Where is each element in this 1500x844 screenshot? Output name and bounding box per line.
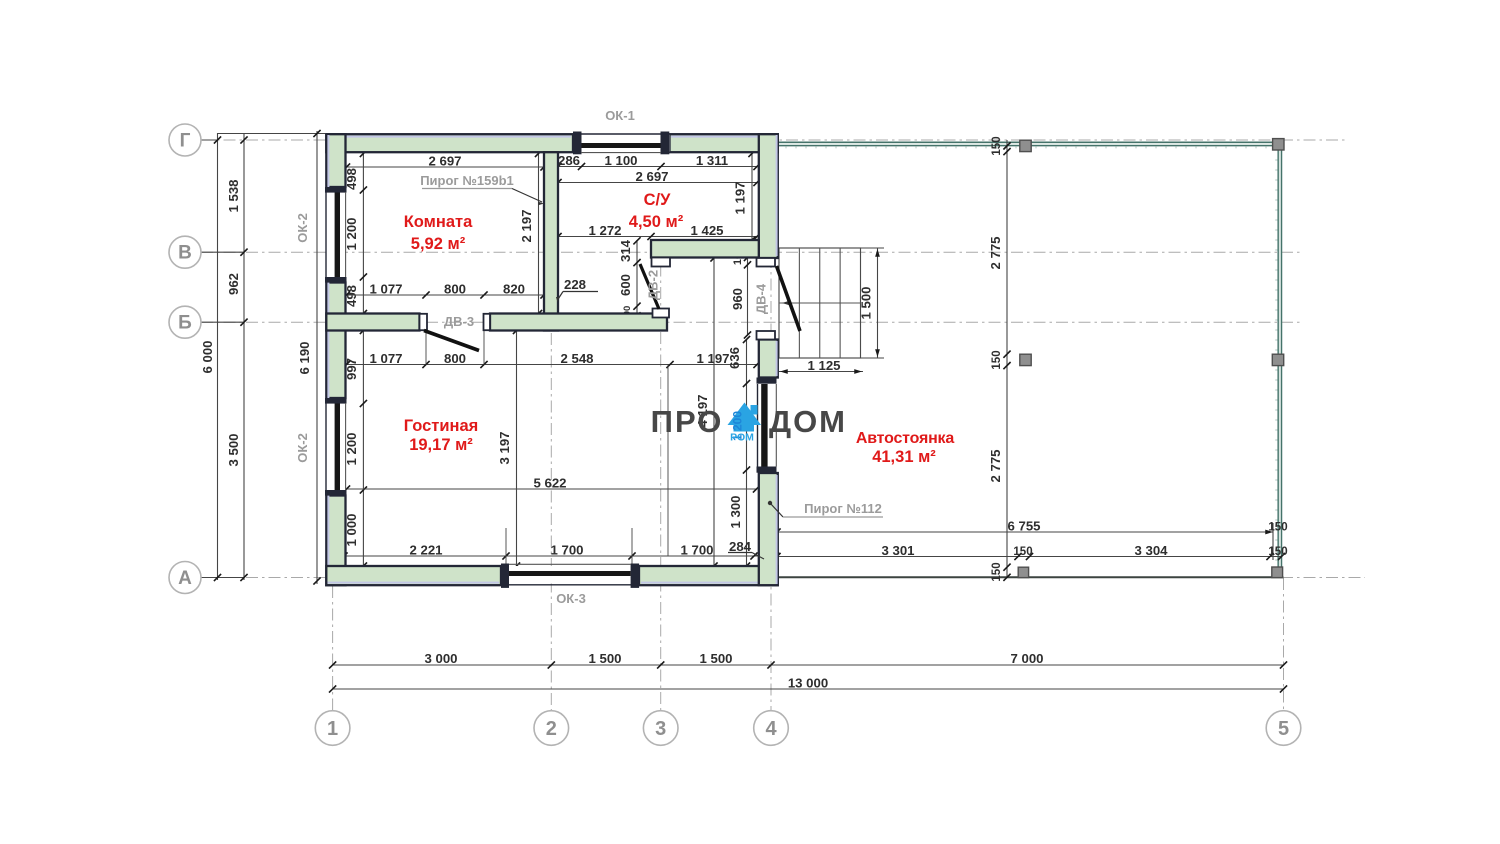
svg-text:150: 150 [991, 562, 1003, 581]
svg-text:2 775: 2 775 [988, 449, 1003, 482]
svg-text:228: 228 [564, 277, 586, 292]
svg-text:1: 1 [327, 718, 338, 740]
svg-text:3 197: 3 197 [497, 431, 512, 464]
svg-text:1 125: 1 125 [807, 358, 840, 373]
svg-text:636: 636 [727, 347, 742, 369]
svg-text:1 200: 1 200 [344, 432, 359, 465]
svg-text:5 622: 5 622 [533, 476, 566, 491]
svg-text:ОК-3: ОК-3 [556, 591, 586, 606]
svg-text:Пирог №159b1: Пирог №159b1 [420, 173, 514, 188]
svg-text:286: 286 [558, 153, 580, 168]
svg-text:600: 600 [618, 274, 633, 296]
svg-text:ДОМ: ДОМ [769, 404, 847, 439]
svg-text:4,50 м²: 4,50 м² [629, 213, 684, 231]
svg-text:800: 800 [444, 281, 466, 296]
svg-text:1 197: 1 197 [696, 351, 729, 366]
svg-text:1 077: 1 077 [369, 281, 402, 296]
svg-text:19,17 м²: 19,17 м² [409, 436, 473, 454]
svg-text:ДВ-3: ДВ-3 [444, 314, 474, 329]
svg-text:2 697: 2 697 [428, 154, 461, 169]
svg-text:Б: Б [178, 313, 192, 334]
svg-text:Пирог №112: Пирог №112 [804, 501, 882, 516]
svg-text:6 755: 6 755 [1007, 519, 1040, 534]
svg-text:7 000: 7 000 [1010, 651, 1043, 666]
svg-text:ОК-1: ОК-1 [605, 108, 635, 123]
svg-text:1 500: 1 500 [588, 651, 621, 666]
svg-text:С/У: С/У [644, 191, 672, 209]
svg-text:150: 150 [1268, 546, 1287, 558]
svg-text:Гостиная: Гостиная [404, 417, 479, 435]
svg-text:2 197: 2 197 [519, 209, 534, 242]
svg-text:2 548: 2 548 [560, 351, 593, 366]
svg-text:150: 150 [1013, 546, 1032, 558]
svg-text:5: 5 [1278, 718, 1289, 740]
svg-text:ДВ-4: ДВ-4 [754, 283, 769, 314]
svg-text:314: 314 [618, 239, 633, 262]
svg-text:1 200: 1 200 [344, 217, 359, 250]
svg-text:А: А [178, 568, 192, 589]
svg-text:4: 4 [765, 718, 777, 740]
svg-text:3 301: 3 301 [881, 543, 914, 558]
svg-text:1 197: 1 197 [733, 181, 748, 214]
svg-text:284: 284 [729, 539, 752, 554]
svg-text:2 221: 2 221 [409, 543, 442, 558]
svg-text:6 000: 6 000 [200, 340, 215, 373]
svg-text:5,92 м²: 5,92 м² [411, 235, 466, 253]
svg-text:1 272: 1 272 [588, 223, 621, 238]
svg-text:3 304: 3 304 [1134, 543, 1168, 558]
svg-text:1 500: 1 500 [859, 286, 874, 319]
svg-text:2 697: 2 697 [635, 169, 668, 184]
svg-text:150: 150 [1268, 522, 1287, 534]
svg-text:1 077: 1 077 [369, 351, 402, 366]
svg-text:820: 820 [503, 281, 525, 296]
svg-text:2 775: 2 775 [988, 236, 1003, 269]
svg-text:РОМ: РОМ [730, 432, 754, 444]
svg-text:ДВ-2: ДВ-2 [646, 270, 661, 300]
svg-text:3 500: 3 500 [226, 433, 241, 466]
svg-text:1 425: 1 425 [690, 223, 723, 238]
svg-text:Автостоянка: Автостоянка [856, 430, 954, 447]
svg-text:Комната: Комната [404, 213, 473, 231]
svg-text:1 700: 1 700 [550, 543, 583, 558]
svg-text:150: 150 [991, 350, 1003, 369]
svg-text:800: 800 [444, 351, 466, 366]
svg-text:1 500: 1 500 [699, 651, 732, 666]
svg-text:1 538: 1 538 [226, 179, 241, 212]
svg-text:1 311: 1 311 [696, 153, 728, 168]
svg-text:150: 150 [991, 136, 1003, 155]
svg-text:41,31 м²: 41,31 м² [872, 448, 936, 466]
svg-text:ОК-2: ОК-2 [295, 213, 310, 243]
svg-text:ПРО: ПРО [651, 404, 724, 439]
svg-text:1 300: 1 300 [728, 495, 743, 528]
svg-text:960: 960 [730, 288, 745, 310]
svg-text:В: В [178, 243, 192, 264]
svg-text:3: 3 [655, 718, 666, 740]
svg-text:2: 2 [546, 718, 557, 740]
svg-text:3 000: 3 000 [424, 651, 457, 666]
svg-text:6 190: 6 190 [297, 341, 312, 374]
svg-text:Г: Г [180, 131, 191, 152]
svg-text:1 700: 1 700 [680, 543, 713, 558]
svg-text:ОК-2: ОК-2 [295, 433, 310, 463]
svg-text:1 100: 1 100 [604, 153, 637, 168]
svg-text:962: 962 [226, 273, 241, 295]
svg-text:13 000: 13 000 [788, 676, 828, 691]
